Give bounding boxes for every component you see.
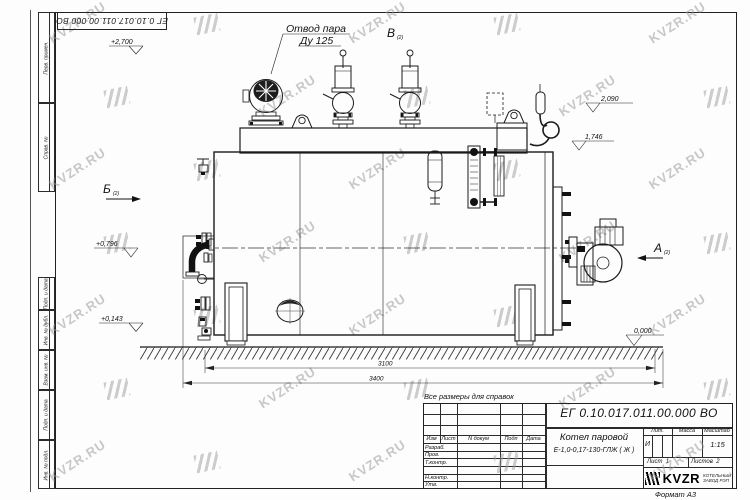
svg-text:В: В	[387, 26, 395, 40]
safety-valve-1	[323, 50, 354, 128]
lifting-lug-right	[504, 110, 524, 123]
support-foot-front	[225, 283, 247, 345]
burner-assembly	[565, 219, 623, 285]
lifting-lug-left	[292, 115, 312, 128]
corner-stamp-designation: ЕГ 0.10.017.011.00.000 ВО	[56, 16, 168, 26]
burner-motor	[595, 227, 623, 245]
svg-text:Ду 125: Ду 125	[299, 35, 333, 47]
elevation-drum: 1,746	[585, 134, 603, 141]
svg-text:(2): (2)	[664, 250, 670, 256]
front-wall-fittings	[183, 159, 214, 340]
dashed-instrument-outline	[487, 93, 503, 115]
steam-outlet-valve	[243, 80, 283, 126]
drawing-sheet: KVZR.RUKVZR.RUKVZR.RUKVZR.RUKVZR.RUKVZR.…	[0, 0, 750, 500]
boiler-shell	[214, 152, 553, 335]
water-level-gauge	[468, 146, 504, 208]
dim-inner-length: 3100	[378, 361, 393, 368]
manhole	[275, 298, 305, 324]
svg-text:Отвод пара: Отвод пара	[286, 23, 346, 35]
view-marker-b: Б (2)	[103, 182, 141, 202]
title-block	[423, 403, 733, 489]
feed-elbow-pipe	[192, 245, 209, 272]
elevation-ground: 0,000	[634, 328, 652, 335]
pressure-gauge-siphon	[530, 84, 559, 146]
elevation-marks	[94, 46, 664, 346]
elevation-elbow: +0,796	[96, 241, 118, 248]
rear-tube-plate	[553, 187, 571, 330]
separator-vessel	[428, 151, 442, 204]
svg-text:А: А	[653, 241, 662, 255]
ground	[140, 347, 663, 360]
corner-stamp: ЕГ 0.10.017.011.00.000 ВО	[57, 12, 167, 30]
elevation-top: +2,700	[111, 39, 133, 46]
svg-text:(2): (2)	[113, 191, 119, 197]
valve-box	[497, 123, 527, 150]
view-marker-a: А (2)	[637, 241, 670, 261]
view-marker-v: В (2)	[387, 26, 403, 41]
svg-text:(2): (2)	[397, 35, 403, 41]
elevation-box: 2,090	[600, 96, 619, 103]
dimension-lines	[183, 280, 663, 388]
dim-overall-length: 3400	[369, 376, 384, 383]
support-foot-rear	[515, 285, 535, 345]
safety-valve-2	[390, 50, 421, 128]
svg-text:Б: Б	[103, 182, 111, 196]
elevation-lower: +0,143	[101, 316, 123, 323]
